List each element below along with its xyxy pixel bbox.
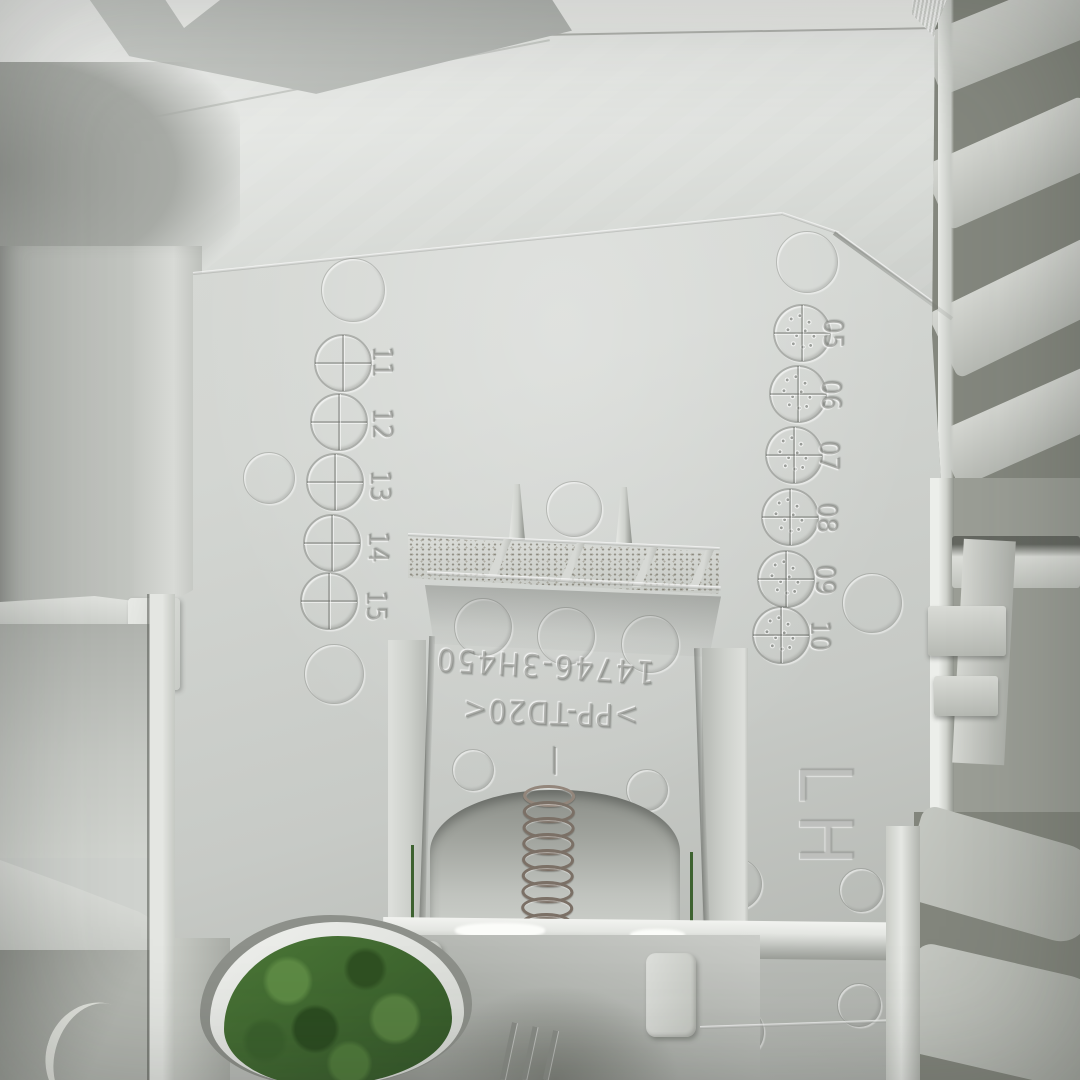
cooling-fin — [898, 804, 1080, 949]
date-wheel-number: 13 — [363, 456, 397, 516]
ejector-mark — [243, 452, 295, 504]
date-clock-number: 06 — [814, 365, 848, 425]
date-clock-marking — [752, 606, 810, 664]
wheel-cross-v — [331, 515, 333, 571]
right-top-fins — [932, 0, 1080, 478]
date-clock-number: 08 — [810, 488, 844, 548]
clock-cross-v — [797, 366, 799, 422]
date-clock-number: 05 — [816, 304, 850, 364]
ejector-mark — [452, 749, 494, 791]
bracket-right-flange — [702, 648, 748, 938]
date-clock-marking — [757, 550, 815, 608]
wheel-cross-v — [342, 335, 344, 391]
ejector-mark — [321, 258, 385, 322]
clip-tab — [934, 676, 998, 716]
clip-tab — [928, 606, 1006, 656]
clock-cross-v — [780, 607, 782, 663]
pocket-boss — [646, 953, 696, 1037]
photo-plastic-trim-panel: 11 12 13 14 15 05 06 07 08 09 10 14746-3… — [0, 0, 1080, 1080]
date-wheel-marking — [300, 572, 358, 630]
ejector-mark — [776, 231, 838, 293]
left-vertical-rail — [147, 594, 175, 1080]
ejector-mark — [842, 573, 902, 633]
date-clock-number: 09 — [808, 550, 842, 610]
date-wheel-number: 11 — [365, 332, 399, 392]
date-wheel-number: 15 — [359, 576, 393, 636]
ejector-mark — [304, 644, 364, 704]
date-wheel-marking — [310, 393, 368, 451]
right-clip-zone — [930, 478, 1080, 812]
fins-left-highlight — [938, 0, 954, 478]
hand-code-text: LH — [788, 730, 862, 910]
right-bottom-fins — [914, 812, 1080, 1080]
date-wheel-number: 12 — [365, 394, 399, 454]
date-wheel-marking — [303, 514, 361, 572]
date-clock-number: 07 — [812, 426, 846, 486]
date-wheel-marking — [306, 453, 364, 511]
date-clock-number: 10 — [803, 606, 837, 666]
cavity-tick-mark: | — [544, 742, 566, 776]
wheel-cross-v — [328, 573, 330, 629]
clock-cross-v — [793, 427, 795, 483]
wheel-cross-v — [334, 454, 336, 510]
clock-cross-v — [801, 305, 803, 361]
wheel-cross-v — [338, 394, 340, 450]
left-recess — [0, 624, 168, 858]
cooling-fin — [935, 364, 1080, 488]
date-wheel-marking — [314, 334, 372, 392]
date-wheel-number: 14 — [361, 517, 395, 577]
clock-cross-v — [785, 551, 787, 607]
left-side-wall — [0, 246, 202, 612]
left-shelf-edge — [0, 852, 170, 952]
material-code-text: >PP-TD20< — [447, 687, 653, 738]
coil-spring — [521, 791, 576, 934]
ejector-mark — [546, 481, 602, 537]
clock-cross-v — [789, 489, 791, 545]
panel-right-bottom-edge — [886, 826, 920, 1080]
cooling-fin — [894, 941, 1080, 1080]
